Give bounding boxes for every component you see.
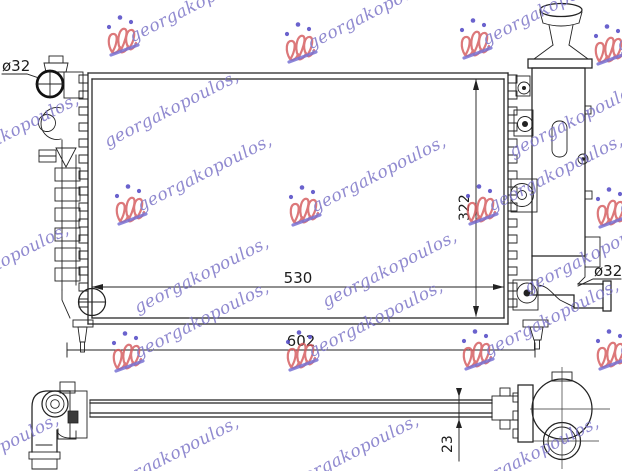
right-tank-teeth (508, 75, 517, 315)
front-view (36, 4, 611, 353)
left-mounting-pin (73, 320, 93, 352)
tank-funnel (56, 148, 76, 167)
right-mounting-pin (523, 320, 548, 349)
left-tank (36, 56, 106, 352)
dim-label-overall-width: 602 (287, 332, 316, 350)
dim-label-inlet-diameter: ø32 (2, 57, 30, 75)
expansion-tank (528, 4, 600, 309)
dim-label-height: 322 (457, 194, 473, 221)
filler-cap (540, 4, 582, 17)
inlet-cap (49, 56, 63, 63)
dim-label-outlet-diameter: ø32 (594, 262, 622, 280)
elbow-pipe-left (29, 382, 87, 469)
dim-label-thickness: 23 (440, 435, 456, 453)
radiator-catalog-drawing: 322 530 602 23 ø32 ø32 georgakopoulos,ge… (0, 0, 622, 471)
radiator-line-drawing: 322 530 602 23 ø32 ø32 (0, 0, 622, 471)
bottom-view (29, 367, 610, 469)
hose-hook (41, 108, 61, 140)
thin-core-profile (90, 400, 492, 417)
dim-label-core-width: 530 (284, 269, 313, 287)
level-window (552, 121, 567, 157)
tank-end-right (492, 367, 610, 469)
